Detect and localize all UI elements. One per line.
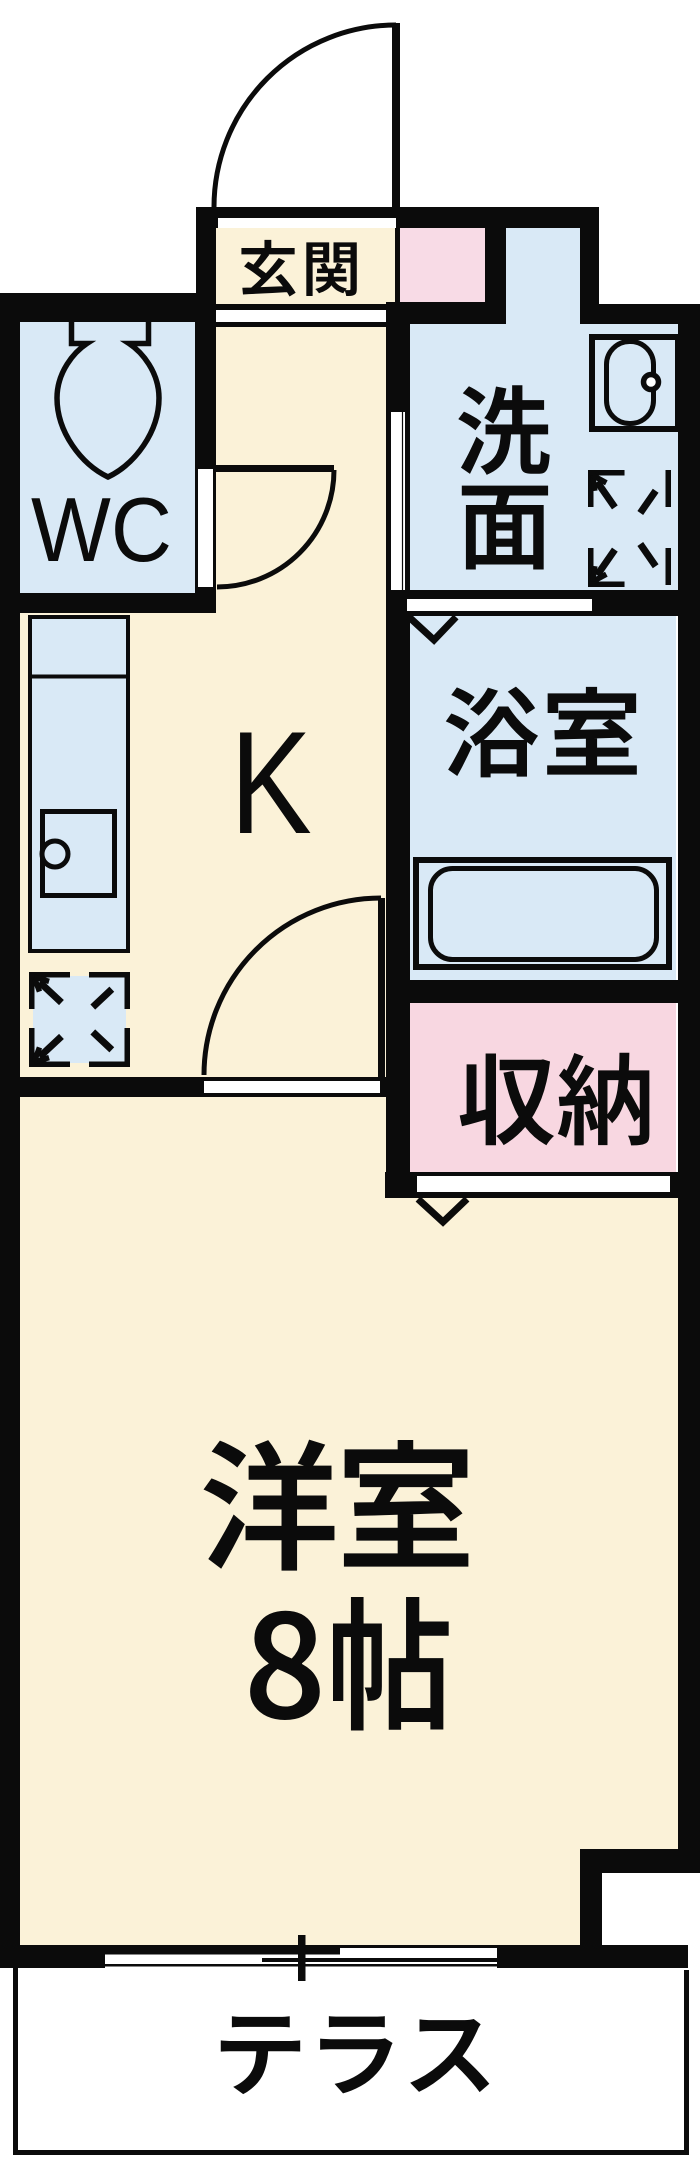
svg-text:K: K — [230, 701, 312, 865]
svg-text:WC: WC — [31, 478, 172, 581]
